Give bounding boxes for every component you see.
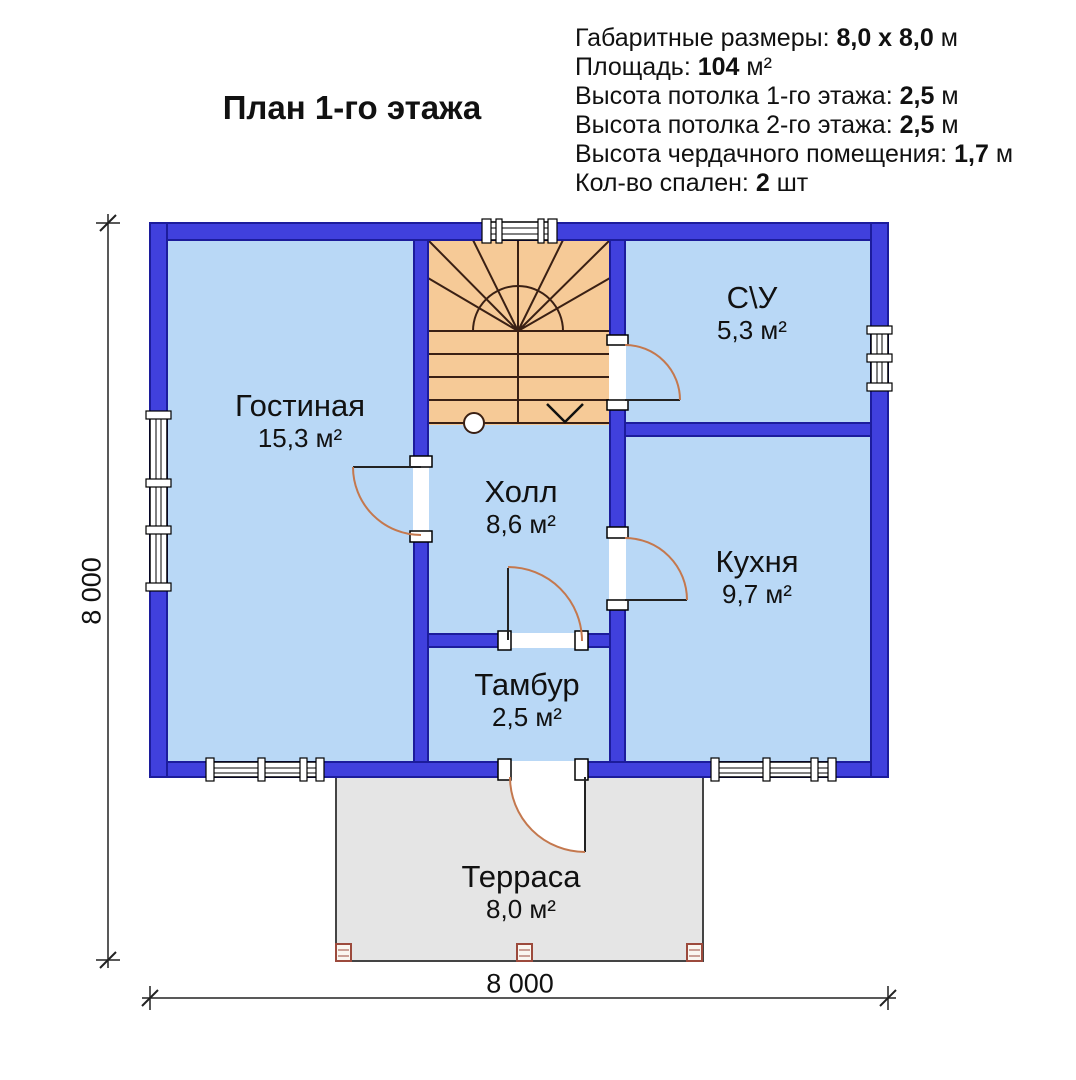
room-area: 9,7 м² xyxy=(716,580,799,610)
room-name: Холл xyxy=(484,474,557,510)
spec-value: 2,5 xyxy=(900,82,935,110)
room-label-hall: Холл 8,6 м² xyxy=(484,474,557,540)
dimension-label-width: 8 000 xyxy=(486,969,554,1000)
spec-label: Кол-во спален: xyxy=(575,169,749,197)
window-left xyxy=(146,411,171,591)
spec-bedrooms: Кол-во спален: 2 шт xyxy=(575,169,1013,198)
room-name: Терраса xyxy=(462,859,581,895)
room-area: 15,3 м² xyxy=(235,424,365,454)
spec-ceiling-1: Высота потолка 1-го этажа: 2,5 м xyxy=(575,82,1013,111)
wall-bath-kitchen xyxy=(625,423,871,436)
spec-unit: шт xyxy=(777,169,809,197)
newel-post xyxy=(464,413,484,433)
spec-value: 104 xyxy=(698,53,740,81)
floor-plan-page: План 1-го этажа Габаритные размеры: 8,0 … xyxy=(0,0,1076,1080)
spec-label: Высота потолка 2-го этажа: xyxy=(575,111,893,139)
window-top xyxy=(482,219,557,243)
spec-value: 8,0 x 8,0 xyxy=(836,24,933,52)
spec-label: Высота чердачного помещения: xyxy=(575,140,947,168)
spec-value: 1,7 xyxy=(954,140,989,168)
spec-value: 2 xyxy=(756,169,770,197)
spec-unit: м xyxy=(941,82,958,110)
specs-block: Габаритные размеры: 8,0 x 8,0 м Площадь:… xyxy=(575,24,1013,198)
window-bottom-kitchen xyxy=(711,758,836,781)
room-area: 8,6 м² xyxy=(484,510,557,540)
room-label-terrace: Терраса 8,0 м² xyxy=(462,859,581,925)
room-name: Кухня xyxy=(716,544,799,580)
dimension-label-height: 8 000 xyxy=(77,557,108,625)
spec-label: Габаритные размеры: xyxy=(575,24,830,52)
page-title: План 1-го этажа xyxy=(223,89,482,127)
spec-label: Площадь: xyxy=(575,53,691,81)
room-area: 8,0 м² xyxy=(462,895,581,925)
room-area: 2,5 м² xyxy=(474,703,579,733)
spec-unit: м xyxy=(996,140,1013,168)
room-label-vestibule: Тамбур 2,5 м² xyxy=(474,667,579,733)
room-name: Тамбур xyxy=(474,667,579,703)
spec-unit: м xyxy=(941,24,958,52)
room-label-kitchen: Кухня 9,7 м² xyxy=(716,544,799,610)
room-label-living: Гостиная 15,3 м² xyxy=(235,388,365,454)
spec-overall-size: Габаритные размеры: 8,0 x 8,0 м xyxy=(575,24,1013,53)
room-name: Гостиная xyxy=(235,388,365,424)
wall-hall-kitchen xyxy=(610,240,625,762)
staircase xyxy=(428,240,610,433)
window-right xyxy=(867,326,892,391)
room-name: С\У xyxy=(717,280,787,316)
spec-ceiling-2: Высота потолка 2-го этажа: 2,5 м xyxy=(575,111,1013,140)
spec-unit: м² xyxy=(746,53,772,81)
room-area: 5,3 м² xyxy=(717,316,787,346)
window-bottom-living xyxy=(206,758,324,781)
spec-label: Высота потолка 1-го этажа: xyxy=(575,82,893,110)
spec-unit: м xyxy=(941,111,958,139)
spec-attic-height: Высота чердачного помещения: 1,7 м xyxy=(575,140,1013,169)
spec-area: Площадь: 104 м² xyxy=(575,53,1013,82)
wall-right xyxy=(871,223,888,777)
spec-value: 2,5 xyxy=(900,111,935,139)
room-label-bathroom: С\У 5,3 м² xyxy=(717,280,787,346)
